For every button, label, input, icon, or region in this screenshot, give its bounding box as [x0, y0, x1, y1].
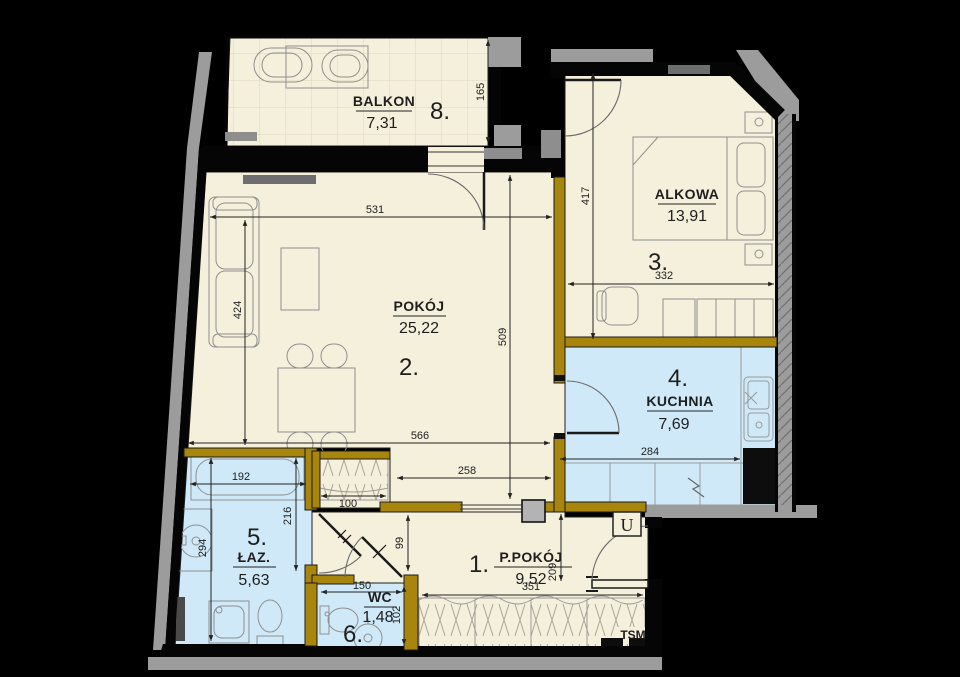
dim-165: 165: [475, 83, 487, 101]
dim-417: 417: [580, 187, 592, 205]
pokoj-area: 25,22: [399, 320, 439, 337]
tsm-label: TSM: [620, 628, 645, 642]
dim-258: 258: [458, 465, 476, 477]
dim-216: 216: [282, 507, 294, 525]
entrance-symbol: U: [621, 515, 634, 535]
dim-192: 192: [232, 471, 250, 483]
alkowa-number: 3.: [648, 249, 668, 276]
wc-name: WC: [368, 589, 392, 605]
dim-294: 294: [197, 539, 209, 557]
dim-566: 566: [411, 430, 429, 442]
balkon-tiles: [226, 37, 488, 146]
pokoj-name: POKÓJ: [393, 297, 444, 314]
column: [522, 500, 545, 522]
lazienka-name: ŁAZ.: [238, 549, 271, 565]
alkowa-area: 13,91: [667, 208, 707, 225]
balkon-number: 8.: [430, 98, 450, 125]
dim-209: 209: [547, 563, 559, 581]
ppokoj-number: 1.: [469, 551, 489, 578]
kuchnia-name: KUCHNIA: [646, 393, 713, 409]
floor-plan-canvas: 531 424 509 566 165 417 332 284 258 192 …: [0, 0, 960, 677]
bath-heater: [176, 597, 185, 641]
fridge: [743, 448, 775, 504]
hall-wardrobe: [419, 596, 652, 647]
ppokoj-name: P.POKÓJ: [499, 548, 562, 565]
east-wall-hatch: [778, 114, 792, 512]
kuchnia-number: 4.: [668, 365, 688, 392]
wc-area: 1,48: [362, 609, 393, 626]
dim-99: 99: [394, 537, 406, 549]
pokoj-number: 2.: [399, 354, 419, 381]
floor-plan: 531 424 509 566 165 417 332 284 258 192 …: [0, 0, 960, 677]
radiator-alkowa: [668, 65, 710, 74]
lazienka-number: 5.: [247, 524, 267, 551]
dim-284: 284: [641, 446, 659, 458]
dim-100: 100: [339, 498, 357, 510]
wc-number: 6.: [343, 621, 363, 648]
balkon-name: BALKON: [353, 93, 415, 109]
balkon-area: 7,31: [366, 115, 397, 132]
ppokoj-area: 9,52: [515, 571, 546, 588]
kuchnia-area: 7,69: [658, 416, 689, 433]
niche-wardrobe: [320, 459, 388, 500]
dim-531: 531: [366, 204, 384, 216]
radiator-pokoj: [243, 175, 316, 184]
lazienka-area: 5,63: [238, 572, 269, 589]
dim-424: 424: [232, 301, 244, 319]
dim-509: 509: [497, 328, 509, 346]
alkowa-name: ALKOWA: [655, 186, 720, 202]
